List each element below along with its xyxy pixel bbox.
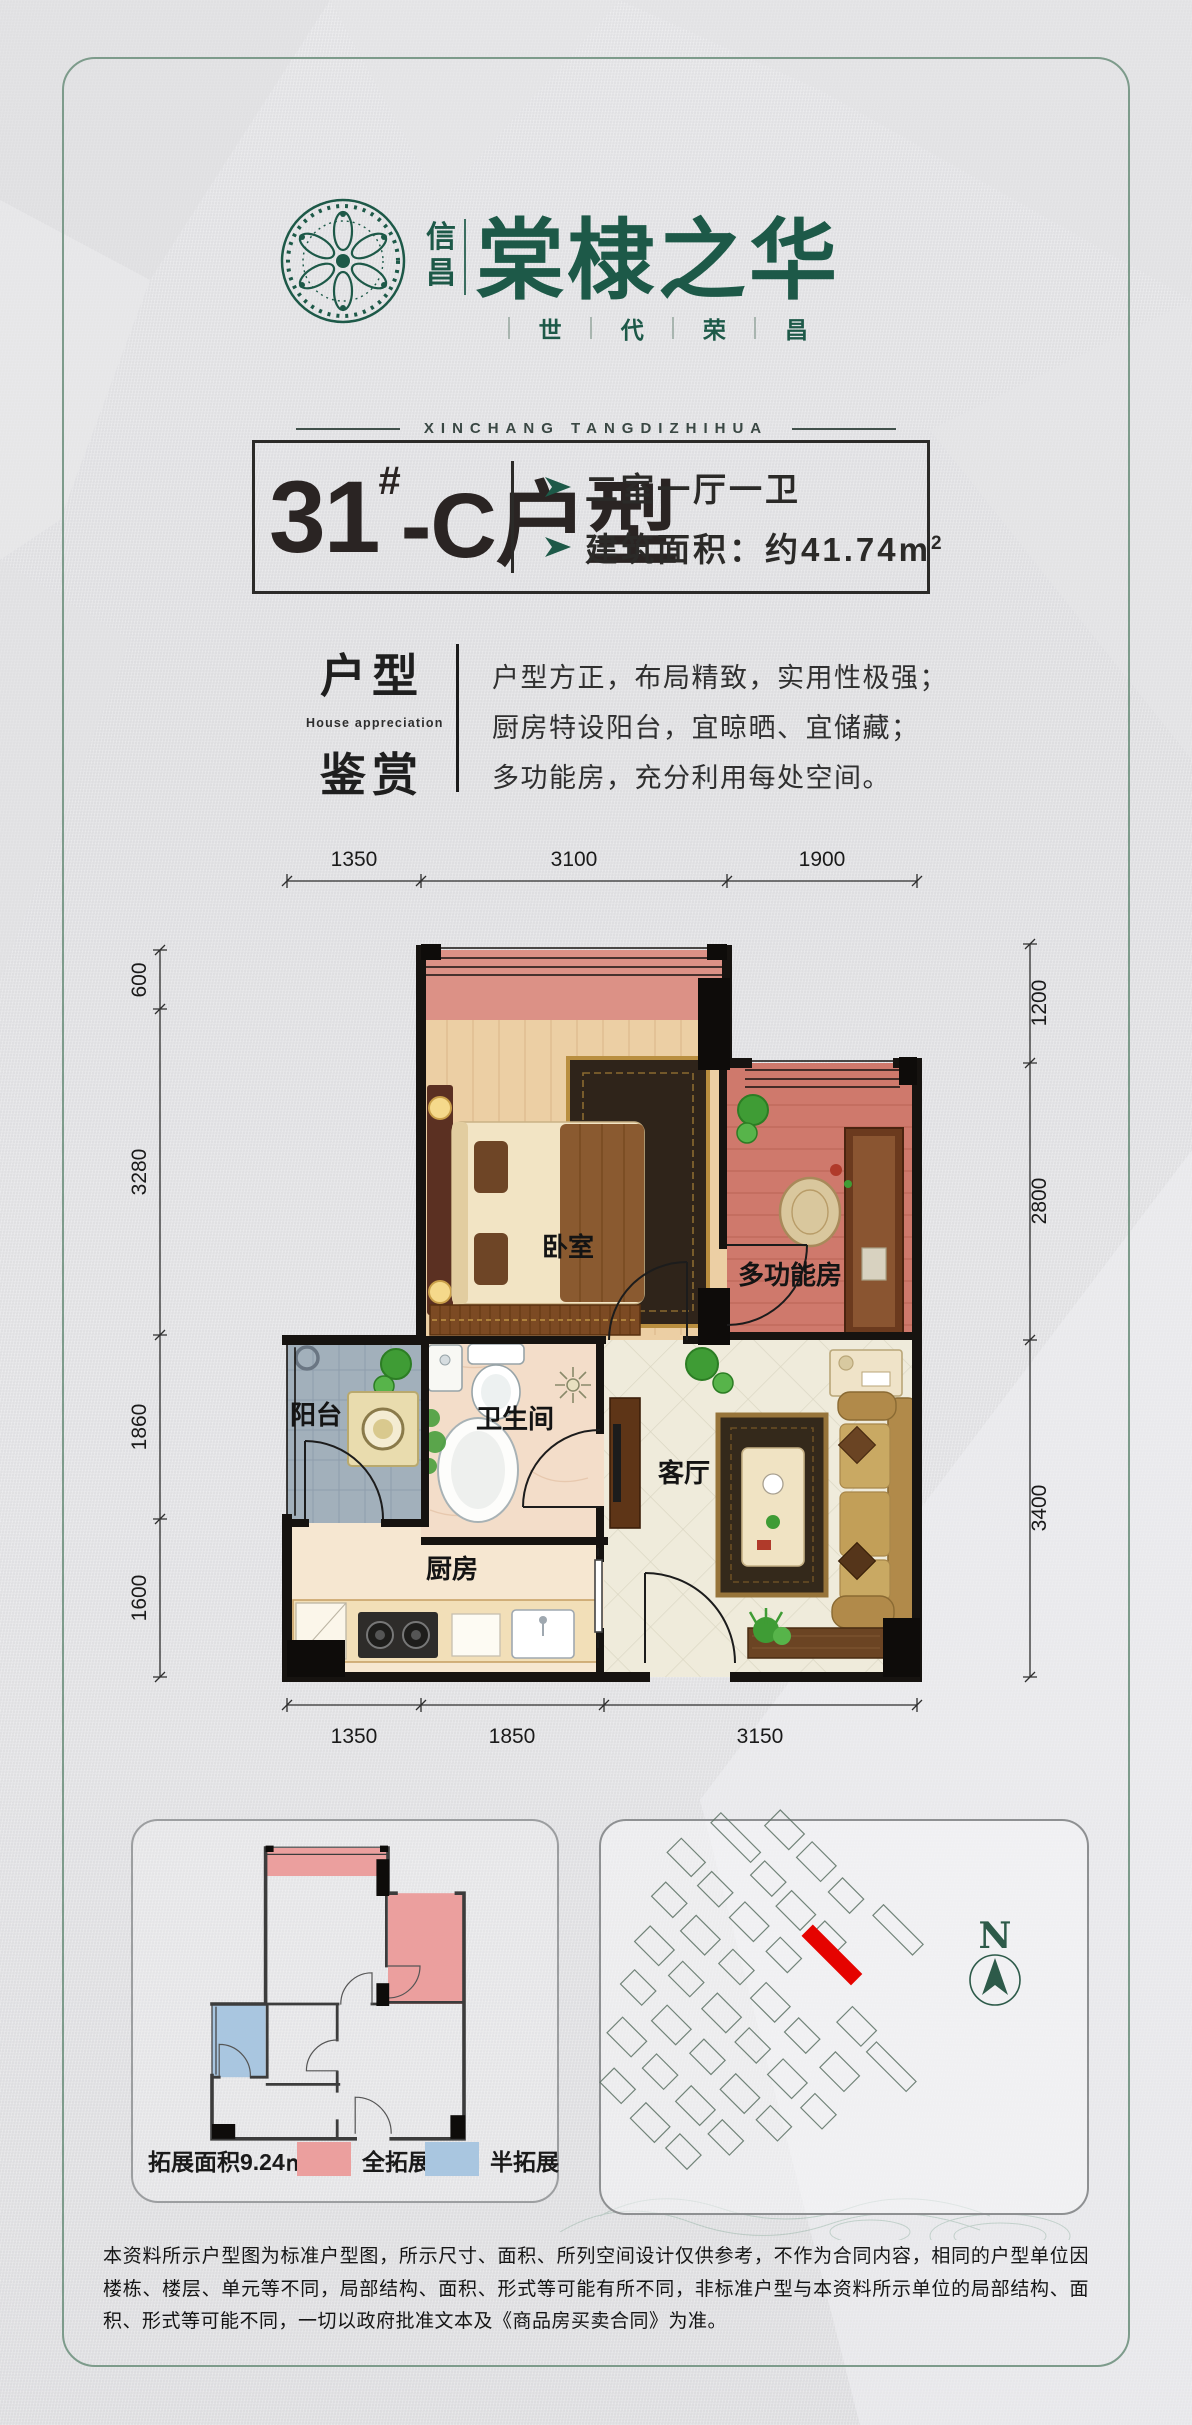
dimension-label: 1350 bbox=[331, 848, 378, 871]
desk-item bbox=[844, 1180, 852, 1188]
plant bbox=[738, 1095, 768, 1125]
appreciation-line: 厨房特设阳台，宜晾晒、宜储藏； bbox=[492, 703, 948, 753]
tagline-char: 代 bbox=[621, 311, 644, 345]
dimension-label: 1350 bbox=[331, 1725, 378, 1748]
room-label-multi: 多功能房 bbox=[738, 1260, 842, 1290]
unit-area-row: 建筑面积：约41.74m2 bbox=[545, 523, 945, 571]
unit-area-text: 建筑面积：约41.74m bbox=[585, 531, 931, 568]
cutting-board bbox=[452, 1614, 500, 1656]
expansion-area-label: 拓展面积9.24㎡ bbox=[148, 2149, 308, 2175]
brand-name: 棠棣之华 bbox=[476, 190, 840, 317]
unit-number-hash: # bbox=[378, 459, 400, 504]
tagline-separator bbox=[508, 317, 510, 339]
disclaimer-text: 本资料所示户型图为标准户型图，所示尺寸、面积、所列空间设计仅供参考，不作为合同内… bbox=[103, 2241, 1089, 2339]
legend-swatch-half bbox=[425, 2142, 479, 2176]
brand-tagline: 世 代 荣 昌 bbox=[508, 311, 808, 345]
room-label-living: 客厅 bbox=[658, 1458, 710, 1488]
brand-prefix-char: 信 bbox=[426, 220, 456, 256]
brand-romanized-row: XINCHANG TANGDIZHIHUA bbox=[0, 420, 1192, 437]
north-label: N bbox=[979, 1915, 1012, 1957]
desk-item bbox=[830, 1164, 842, 1176]
right-rule bbox=[792, 428, 896, 430]
plant bbox=[713, 1373, 733, 1393]
appreciation-title-en: House appreciation bbox=[306, 716, 438, 730]
bottom-panels: 拓展面积9.24㎡ 全拓展 半拓展 N bbox=[0, 1800, 1192, 2240]
tagline-separator bbox=[754, 317, 756, 339]
bay-window-floor bbox=[421, 950, 727, 1020]
dimension-label: 3400 bbox=[1028, 1485, 1051, 1532]
room-label-kitchen: 厨房 bbox=[426, 1554, 478, 1584]
plant bbox=[686, 1348, 718, 1380]
dimension-label: 1200 bbox=[1028, 980, 1051, 1027]
appreciation-divider bbox=[456, 644, 459, 792]
appreciation-title-bottom: 鉴赏 bbox=[306, 739, 438, 805]
arrow-bullet-icon bbox=[545, 535, 571, 559]
plant bbox=[381, 1349, 411, 1379]
unit-area-sup: 2 bbox=[931, 533, 945, 554]
sofa bbox=[832, 1392, 917, 1628]
ceiling-light-icon bbox=[555, 1367, 591, 1403]
dimension-label: 600 bbox=[128, 962, 151, 997]
legend-swatch-full bbox=[297, 2142, 351, 2176]
tv-cabinet bbox=[610, 1398, 640, 1528]
room-label-bath: 卫生间 bbox=[476, 1404, 554, 1434]
tagline-char: 世 bbox=[539, 311, 562, 345]
unit-area-label: 建筑面积：约41.74m2 bbox=[585, 523, 945, 571]
unit-title-divider bbox=[511, 461, 514, 573]
arrow-bullet-icon bbox=[545, 475, 571, 499]
tagline-separator bbox=[672, 317, 674, 339]
brand-prefix: 信 昌 bbox=[426, 220, 456, 292]
room-label-bedroom: 卧室 bbox=[542, 1232, 594, 1262]
dimension-label: 3150 bbox=[737, 1725, 784, 1748]
washbasin bbox=[428, 1345, 462, 1391]
dimension-label: 3280 bbox=[128, 1149, 151, 1196]
dimension-label: 1900 bbox=[799, 848, 846, 871]
room-label-balcony: 阳台 bbox=[290, 1400, 342, 1430]
appreciation-heading: 户型 House appreciation 鉴赏 bbox=[306, 640, 438, 805]
floor-plan: 1350 3100 1900 1350 1850 3150 600 3280 1… bbox=[0, 838, 1192, 1768]
appreciation-line: 多功能房，充分利用每处空间。 bbox=[492, 753, 948, 803]
tagline-char: 昌 bbox=[785, 311, 808, 345]
brand-romanized: XINCHANG TANGDIZHIHUA bbox=[424, 420, 768, 437]
coffee-table bbox=[742, 1448, 804, 1566]
tagline-separator bbox=[590, 317, 592, 339]
dimension-label: 1860 bbox=[128, 1404, 151, 1451]
tagline-char: 荣 bbox=[703, 311, 726, 345]
legend-label-half: 半拓展 bbox=[490, 2149, 559, 2175]
wall-lamp bbox=[429, 1097, 451, 1119]
brand-divider bbox=[464, 219, 466, 295]
unit-number: 31 bbox=[269, 459, 378, 576]
dimension-label: 2800 bbox=[1028, 1178, 1051, 1225]
unit-feature-row: 二室一厅一卫 bbox=[545, 463, 801, 511]
desk bbox=[845, 1128, 903, 1335]
appreciation-line: 户型方正，布局精致，实用性极强； bbox=[492, 653, 948, 703]
washbasin-faucet bbox=[440, 1355, 450, 1365]
dimension-label: 1850 bbox=[489, 1725, 536, 1748]
left-rule bbox=[296, 428, 400, 430]
appreciation-text: 户型方正，布局精致，实用性极强； 厨房特设阳台，宜晾晒、宜储藏； 多功能房，充分… bbox=[492, 653, 948, 803]
bed bbox=[452, 1122, 644, 1304]
dimension-label: 3100 bbox=[551, 848, 598, 871]
plant bbox=[737, 1123, 757, 1143]
console-table bbox=[830, 1350, 902, 1396]
brand-prefix-char: 昌 bbox=[426, 256, 456, 292]
brand-medallion-icon bbox=[279, 197, 407, 325]
round-chair bbox=[780, 1178, 840, 1246]
dimension-label: 1600 bbox=[128, 1575, 151, 1622]
poster-page: 信 昌 棠棣之华 世 代 荣 昌 XINCHANG TANGDIZHIHUA 3… bbox=[0, 0, 1192, 2425]
appreciation-title-top: 户型 bbox=[306, 640, 438, 706]
washing-machine bbox=[348, 1392, 418, 1466]
unit-layout-label: 二室一厅一卫 bbox=[585, 463, 801, 511]
legend-label-full: 全拓展 bbox=[361, 2149, 431, 2175]
unit-title-box: 31 # -C户型 二室一厅一卫 建筑面积：约41.74m2 bbox=[252, 440, 930, 594]
wall-lamp bbox=[429, 1281, 451, 1303]
wardrobe bbox=[430, 1305, 640, 1335]
